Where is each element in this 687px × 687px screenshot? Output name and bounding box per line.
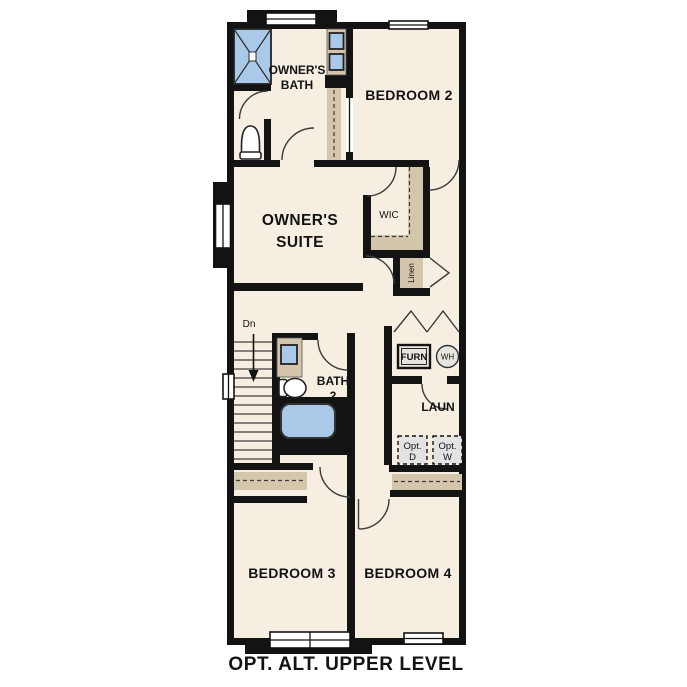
tub-icon <box>281 404 335 438</box>
bedroom2-closet-opening <box>346 98 353 152</box>
window-icon <box>266 13 316 25</box>
sink-icon <box>281 345 297 364</box>
shower-icon <box>234 29 271 84</box>
toilet-icon <box>240 126 261 159</box>
owners-suite-label-line2: SUITE <box>276 234 324 251</box>
bedroom4-label: BEDROOM 4 <box>364 565 452 581</box>
opt-washer-label-line2: W <box>443 452 452 463</box>
bedroom3-label: BEDROOM 3 <box>248 565 336 581</box>
window-icon <box>404 633 443 644</box>
vanity-cabinet <box>327 29 346 75</box>
window-icon <box>216 204 231 248</box>
bath2-vanity <box>277 338 302 377</box>
furnace-label: FURN <box>401 352 428 363</box>
window-icon <box>270 632 350 648</box>
linen-label: Linen <box>407 263 416 283</box>
opt-dryer-label-line2: D <box>409 452 416 463</box>
stairs-dn-label: Dn <box>243 319 256 330</box>
opt-washer-label-line1: Opt. <box>439 441 457 452</box>
opt-dryer-label-line1: Opt. <box>404 441 422 452</box>
bedroom2-label: BEDROOM 2 <box>365 87 453 103</box>
sink-icon <box>330 54 344 70</box>
window-icon <box>389 21 428 29</box>
floor-plan: OWNER'S BATH BEDROOM 2 OWNER'S SUITE WIC… <box>0 0 687 687</box>
bath2-label-line1: BATH <box>317 374 349 388</box>
sink-icon <box>330 33 344 49</box>
closet-shelf <box>327 88 341 160</box>
closet-shelf <box>234 472 307 490</box>
owners-suite-label-line1: OWNER'S <box>262 212 338 229</box>
plan-caption: OPT. ALT. UPPER LEVEL <box>228 654 463 675</box>
owners-bath-label-line1: OWNER'S <box>269 63 326 77</box>
closet-shelf <box>392 474 462 490</box>
owners-bath-label-line2: BATH <box>281 78 313 92</box>
wic-label: WIC <box>379 210 398 221</box>
bath2-label-line2: 2 <box>330 389 337 403</box>
laundry-label: LAUN <box>421 400 454 414</box>
window-icon <box>223 374 234 399</box>
floor-plan-drawing: OWNER'S BATH BEDROOM 2 OWNER'S SUITE WIC… <box>0 0 687 687</box>
toilet-icon <box>279 379 306 398</box>
water-heater-label: WH <box>441 353 455 362</box>
